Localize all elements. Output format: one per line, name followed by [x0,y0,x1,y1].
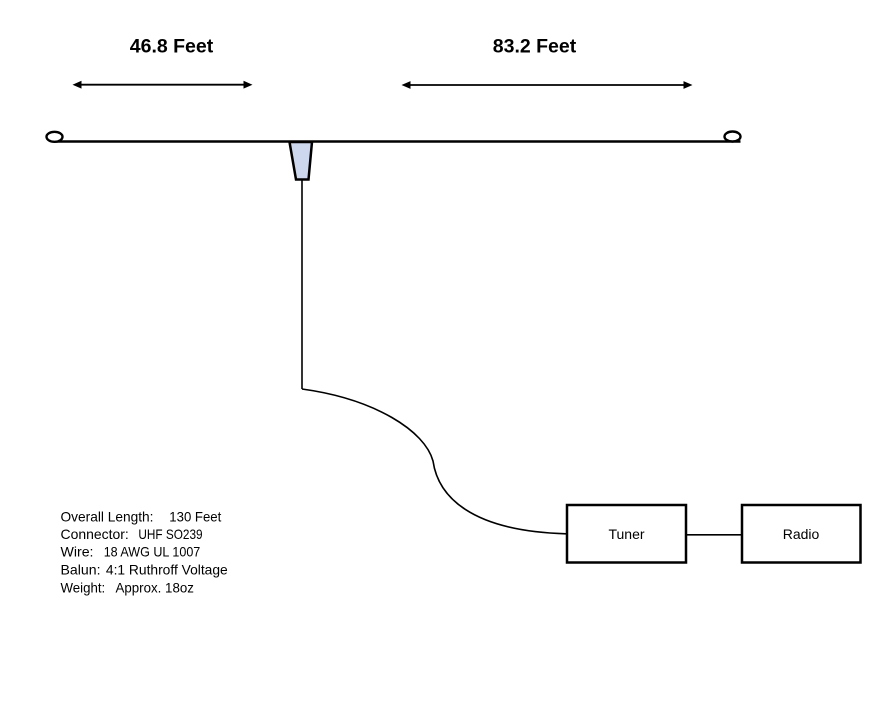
svg-text:Approx. 18oz: Approx. 18oz [116,580,194,596]
svg-text:Radio: Radio [783,526,820,542]
svg-text:Balun:: Balun: [61,562,101,578]
svg-text:46.8 Feet: 46.8 Feet [130,36,214,58]
svg-text:4:1 Ruthroff Voltage: 4:1 Ruthroff Voltage [106,562,228,578]
svg-text:83.2 Feet: 83.2 Feet [493,36,577,58]
svg-text:Wire:: Wire: [61,544,94,560]
svg-text:18 AWG UL 1007: 18 AWG UL 1007 [104,544,201,560]
svg-text:Tuner: Tuner [608,526,644,542]
svg-text:Weight:: Weight: [61,580,106,596]
svg-text:UHF SO239: UHF SO239 [138,526,202,542]
svg-text:Overall Length:: Overall Length: [61,509,154,525]
svg-text:130 Feet: 130 Feet [169,509,221,525]
svg-text:Connector:: Connector: [61,526,129,542]
